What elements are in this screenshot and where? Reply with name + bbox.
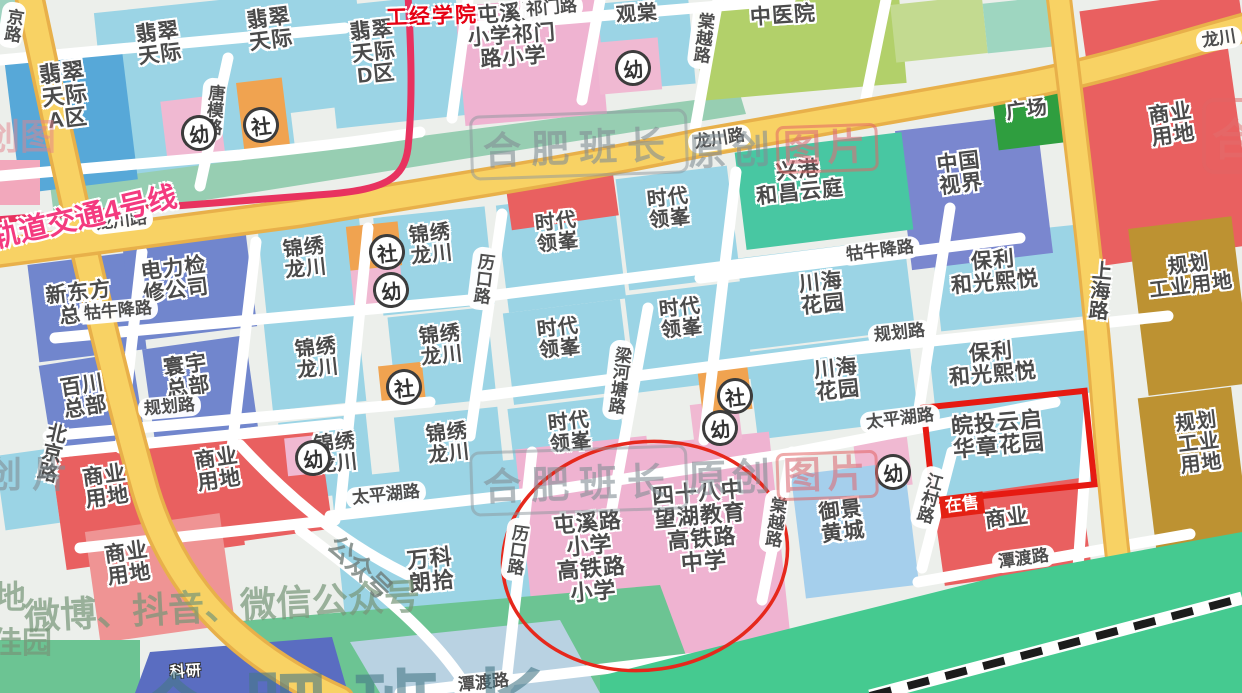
block-label-hospital: 中医院 [749, 3, 816, 29]
watermark-brand-1: 合肥班长 [469, 108, 689, 181]
block-label-shidai-2: 时代 领峯 [646, 186, 692, 232]
block-label-shidai-1: 时代 领峯 [534, 210, 580, 256]
watermark-original-suffix: 图片 [775, 123, 879, 175]
map-canvas: 翡翠 天际 A区 翡翠 天际 翡翠 天际 翡翠 天际 D区 屯溪路 小学祁门 路… [0, 0, 1242, 693]
block-label-guantang: 观棠 [615, 3, 658, 27]
block-label-commerce-bl1: 商业 用地 [81, 462, 131, 511]
watermark-left-fragment-1: 创图 [0, 108, 56, 160]
block-label-commerce-bl2: 商业 用地 [193, 445, 243, 494]
block-label-industry-2: 规划 工业 用地 [1174, 410, 1223, 477]
block-label-baoli-1: 保利 和光熙悦 [948, 246, 1039, 297]
block-label-jinxiu-4: 锦绣 龙川 [418, 323, 464, 369]
block-label-jinxiu-1: 锦绣 龙川 [282, 236, 328, 282]
block-label-wantou: 皖投云启 华章花园 [950, 408, 1046, 462]
block-label-commerce-tr: 商业 用地 [1147, 100, 1197, 149]
college-annotation: 工经学院 [386, 0, 479, 32]
watermark-social-jiayuan: 佳园 [0, 618, 52, 662]
block-label-baichuan: 百川 总部 [59, 372, 109, 422]
watermark-original-2: 原创图片 [687, 442, 879, 504]
block-label-jinxiu-6: 锦绣 龙川 [425, 421, 471, 467]
watermark-original-1: 原创图片 [687, 115, 879, 177]
watermark-brand-2: 合肥班长 [469, 444, 689, 517]
watermark-original-prefix: 原创 [687, 129, 776, 174]
block-label-china-vision: 中国 视界 [936, 149, 985, 198]
watermark-left-fragment-2: 创 片 [0, 446, 68, 498]
block-label-shidai-4: 时代 领峯 [658, 296, 704, 342]
block-label-feicui-2: 翡翠 天际 [246, 5, 295, 54]
block-label-jinxiu-3: 锦绣 龙川 [294, 336, 340, 382]
block-label-chuanhai-1: 川海 花园 [798, 270, 846, 318]
block-label-yujing: 御景 黄城 [818, 497, 867, 546]
block-label-shidai-3: 时代 领峯 [536, 316, 582, 362]
block-label-jinxiu-2: 锦绣 龙川 [408, 222, 454, 268]
road-label-shanghai: 上海路 [1081, 259, 1115, 321]
watermark-social-di: 地 [0, 572, 26, 618]
block-label-school-tunxi: 屯溪路 小学 高铁路 小学 [552, 509, 629, 606]
watermark-brand-big: 合肥班长 [129, 638, 579, 693]
block-label-feicui-1: 翡翠 天际 [135, 19, 184, 68]
block-label-baoli-2: 保利 和光熙悦 [946, 338, 1037, 389]
watermark-he-fragment: 合 [1202, 98, 1242, 174]
block-label-chuanhai-2: 川海 花园 [813, 356, 861, 404]
